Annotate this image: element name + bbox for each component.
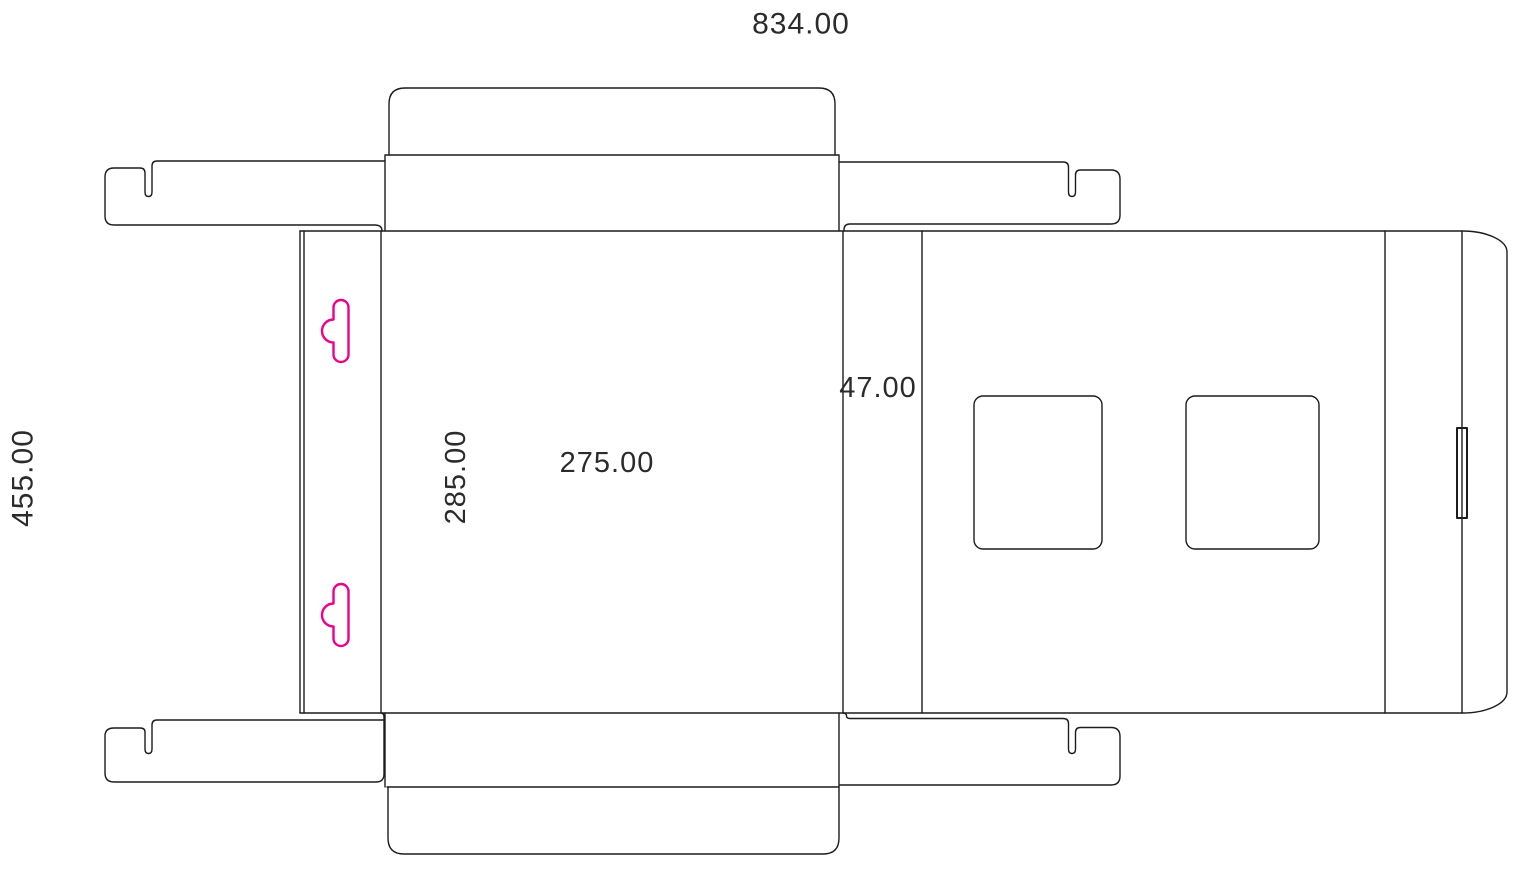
bottom-left-dust-flap [105, 713, 384, 782]
dim-total-height: 455.00 [7, 429, 40, 527]
dim-total-width: 834.00 [752, 8, 850, 41]
window-cutout-right [1186, 396, 1319, 549]
top-right-dust-flap [839, 162, 1120, 230]
window-cutout-left [974, 396, 1102, 549]
dimension-labels: 834.00 455.00 285.00 275.00 47.00 [7, 8, 917, 527]
dim-panel-height: 285.00 [440, 430, 472, 525]
cut-lines [105, 88, 1507, 854]
dim-panel-width: 275.00 [560, 447, 655, 479]
hang-hole-top [322, 300, 349, 362]
top-left-dust-flap [105, 161, 385, 231]
main-body-outline [300, 231, 1507, 713]
top-tuck-flap [389, 88, 835, 155]
bottom-right-dust-flap [840, 713, 1120, 785]
dim-side-panel-width: 47.00 [839, 372, 917, 404]
hang-hole-bottom [322, 584, 349, 646]
hang-holes [322, 300, 349, 646]
bottom-tuck-flap [388, 713, 839, 854]
dieline-canvas: 834.00 455.00 285.00 275.00 47.00 [0, 0, 1532, 874]
